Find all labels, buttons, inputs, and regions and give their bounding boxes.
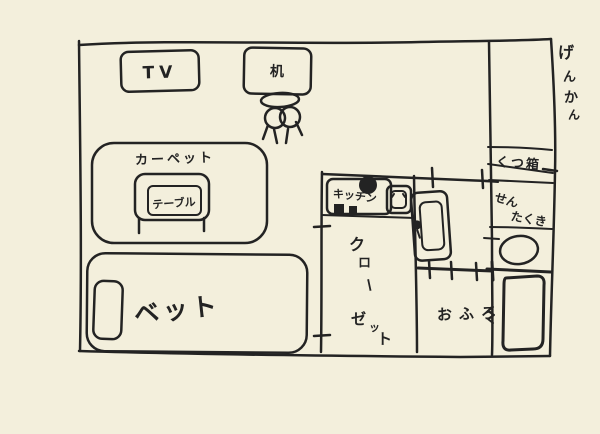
chair: [261, 92, 302, 143]
door-panel: [419, 201, 444, 250]
closet: ク ロ ー ゼ ッ ト: [349, 235, 392, 348]
shoe-box-top-line: [488, 147, 552, 150]
kitchen: キッチン: [327, 176, 411, 214]
table-label: テーブル: [152, 195, 196, 212]
wall-kitchen-closet-divider: [322, 215, 415, 218]
tick: [483, 181, 498, 182]
entrance-char: ん: [568, 108, 580, 122]
pillow: [93, 281, 123, 340]
washing-machine-label-line1: せん: [493, 190, 520, 210]
chair-leg: [263, 125, 268, 139]
wall-right: [550, 39, 555, 356]
kitchen-knob: [349, 206, 357, 214]
desk-label: 机: [270, 63, 284, 80]
tick: [429, 261, 430, 278]
bed-label: ベット: [133, 291, 223, 329]
entrance-char: ん: [563, 70, 576, 85]
table: テーブル: [135, 174, 209, 233]
washing-machine-label-line2: たくき: [510, 209, 548, 229]
closet-char: ト: [377, 330, 392, 348]
chair-leg: [296, 122, 302, 135]
toilet-bottom-line: [487, 269, 551, 272]
tick: [451, 262, 452, 279]
tick: [484, 238, 499, 239]
chair-leg: [274, 129, 277, 143]
door-knob-stem: [417, 230, 420, 238]
tick: [482, 170, 483, 188]
closet-char: ロ: [358, 256, 371, 271]
wall-top: [79, 39, 551, 45]
bathtub-outline: [503, 276, 544, 350]
closet-char: ク: [349, 235, 365, 254]
tick: [314, 226, 330, 227]
desk: 机: [244, 47, 312, 94]
floor-plan-canvas: TV 机 カーペット テーブル ベット: [0, 0, 600, 434]
wall-closet-right: [414, 176, 417, 352]
bath: おふろ: [437, 276, 545, 350]
shoe-box-label: くつ箱: [495, 154, 541, 173]
closet-char: ゼ: [351, 310, 366, 328]
toilet-bowl: [498, 233, 540, 266]
wall-kitchen-left: [321, 172, 322, 352]
closet-char: ー: [359, 277, 378, 294]
bed: ベット: [87, 253, 308, 353]
floor-plan-sketch: TV 机 カーペット テーブル ベット: [0, 0, 600, 434]
tick: [476, 263, 477, 280]
tv: TV: [120, 50, 199, 92]
entrance: げ ん か ん: [558, 43, 580, 122]
sink-mark: [403, 194, 405, 197]
kitchen-knob: [334, 204, 344, 214]
entrance-char: げ: [558, 43, 575, 62]
tick: [314, 335, 330, 336]
carpet-label: カーペット: [135, 151, 215, 169]
tv-label: TV: [142, 63, 177, 84]
carpet: カーペット テーブル: [92, 143, 267, 243]
sink-mark: [392, 194, 394, 197]
chair-leg: [286, 129, 288, 143]
tick: [492, 262, 493, 280]
washing-machine: せん たくき: [493, 190, 548, 229]
entrance-char: か: [564, 90, 578, 106]
wall-left: [79, 41, 81, 351]
tick: [432, 168, 433, 187]
